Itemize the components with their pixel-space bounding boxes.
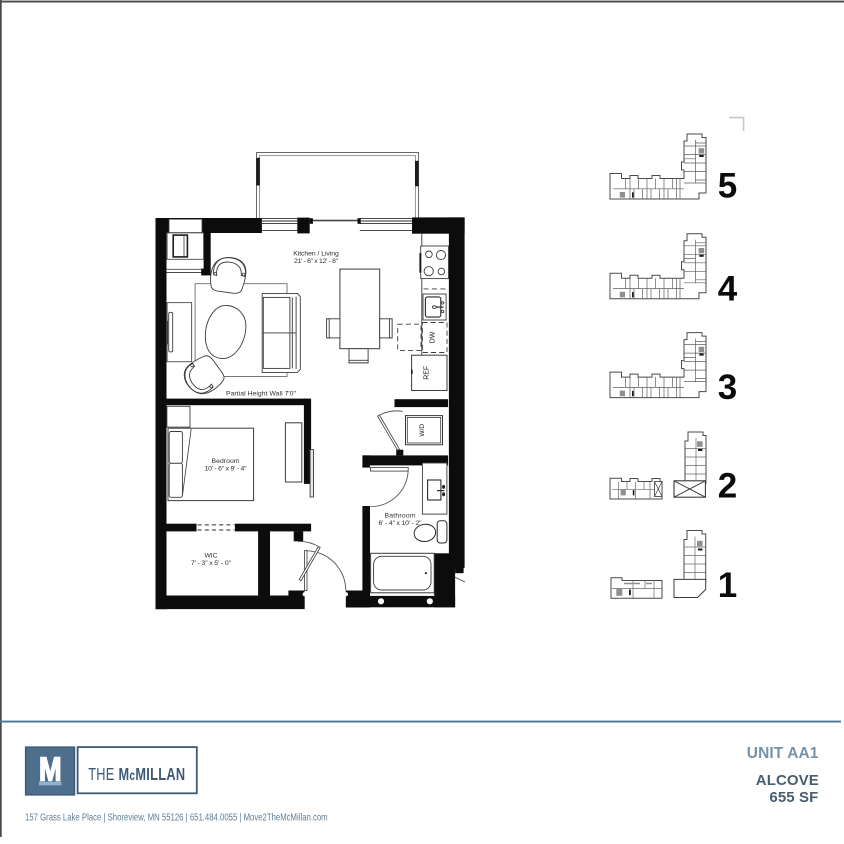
svg-text:Bedroom: Bedroom: [212, 458, 240, 465]
svg-text:Kitchen / Living: Kitchen / Living: [293, 251, 339, 258]
svg-text:THE McMILLAN: THE McMILLAN: [88, 765, 185, 784]
svg-text:157 Grass Lake Place | Shorevi: 157 Grass Lake Place | Shoreview, MN 551…: [25, 812, 328, 823]
svg-text:UNIT AA1: UNIT AA1: [747, 745, 819, 762]
svg-text:4: 4: [718, 269, 738, 308]
svg-text:2: 2: [718, 466, 737, 505]
svg-text:10' - 6" x 9' - 4": 10' - 6" x 9' - 4": [205, 466, 248, 473]
svg-text:6' - 4" x 10' - 2": 6' - 4" x 10' - 2": [379, 520, 423, 527]
svg-text:Bathroom: Bathroom: [385, 513, 416, 520]
svg-text:655 SF: 655 SF: [769, 789, 818, 806]
svg-text:WIC: WIC: [205, 553, 218, 560]
svg-text:21' - 6" x 12' - 8": 21' - 6" x 12' - 8": [294, 258, 339, 265]
svg-text:W/D: W/D: [419, 424, 426, 437]
svg-text:Partial Height Wall 7'0": Partial Height Wall 7'0": [226, 391, 297, 398]
svg-text:ALCOVE: ALCOVE: [756, 772, 819, 789]
svg-text:REF: REF: [424, 366, 431, 380]
svg-text:7' - 3" x 5' - 0": 7' - 3" x 5' - 0": [191, 560, 232, 567]
svg-text:DW: DW: [430, 331, 437, 343]
svg-text:1: 1: [718, 566, 737, 605]
svg-text:5: 5: [718, 167, 737, 206]
svg-text:3: 3: [718, 368, 737, 407]
